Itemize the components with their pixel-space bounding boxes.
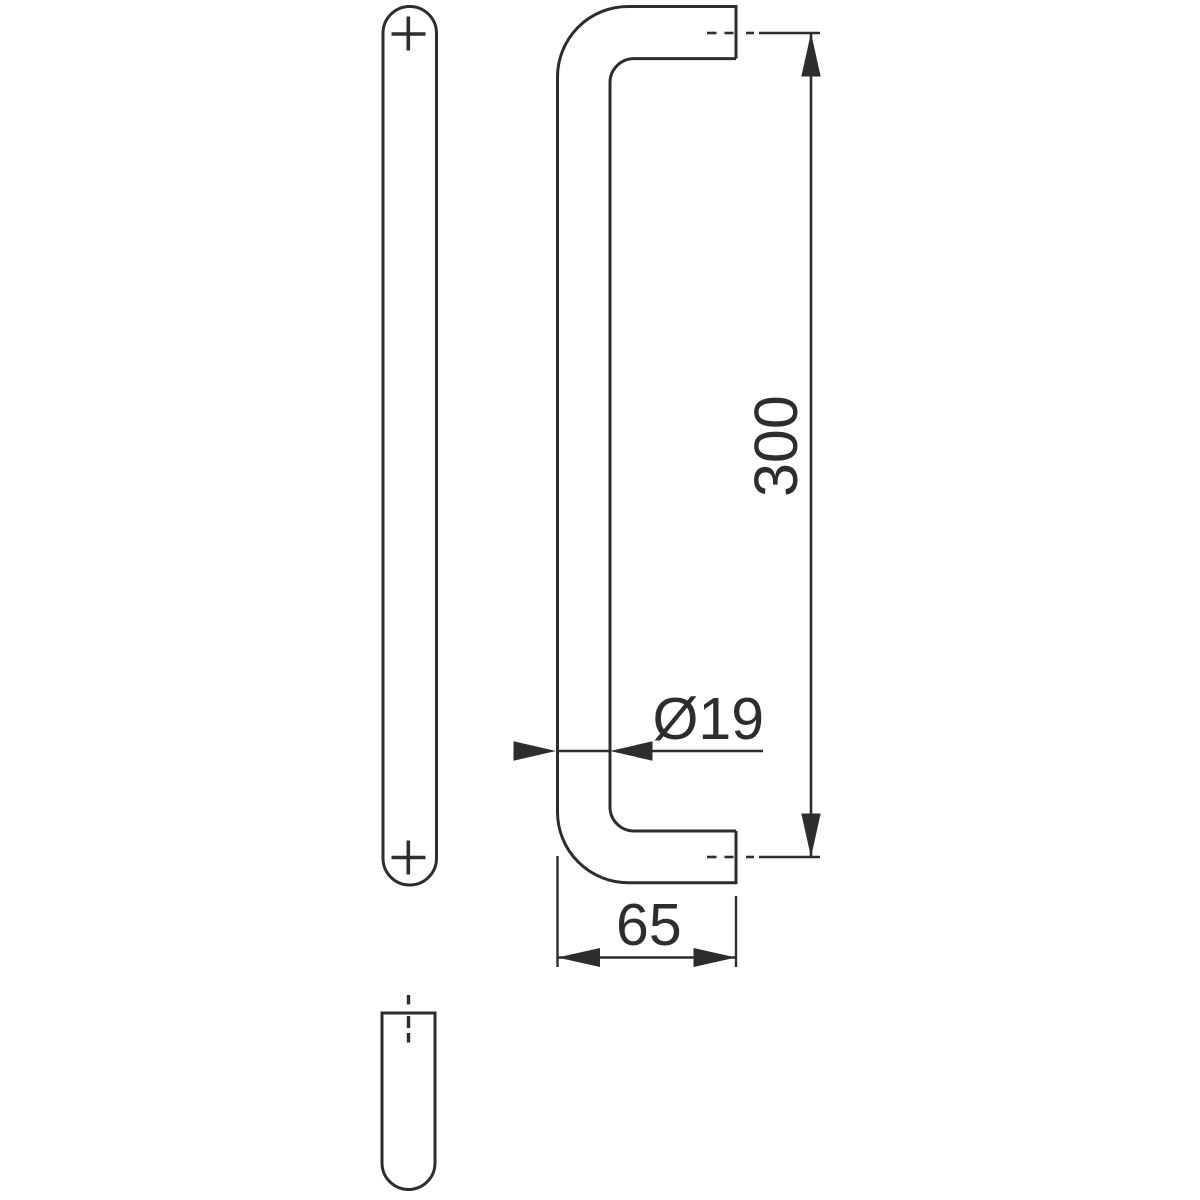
svg-text:300: 300 [742,395,810,497]
svg-text:Ø19: Ø19 [653,686,765,752]
svg-text:65: 65 [616,892,682,958]
